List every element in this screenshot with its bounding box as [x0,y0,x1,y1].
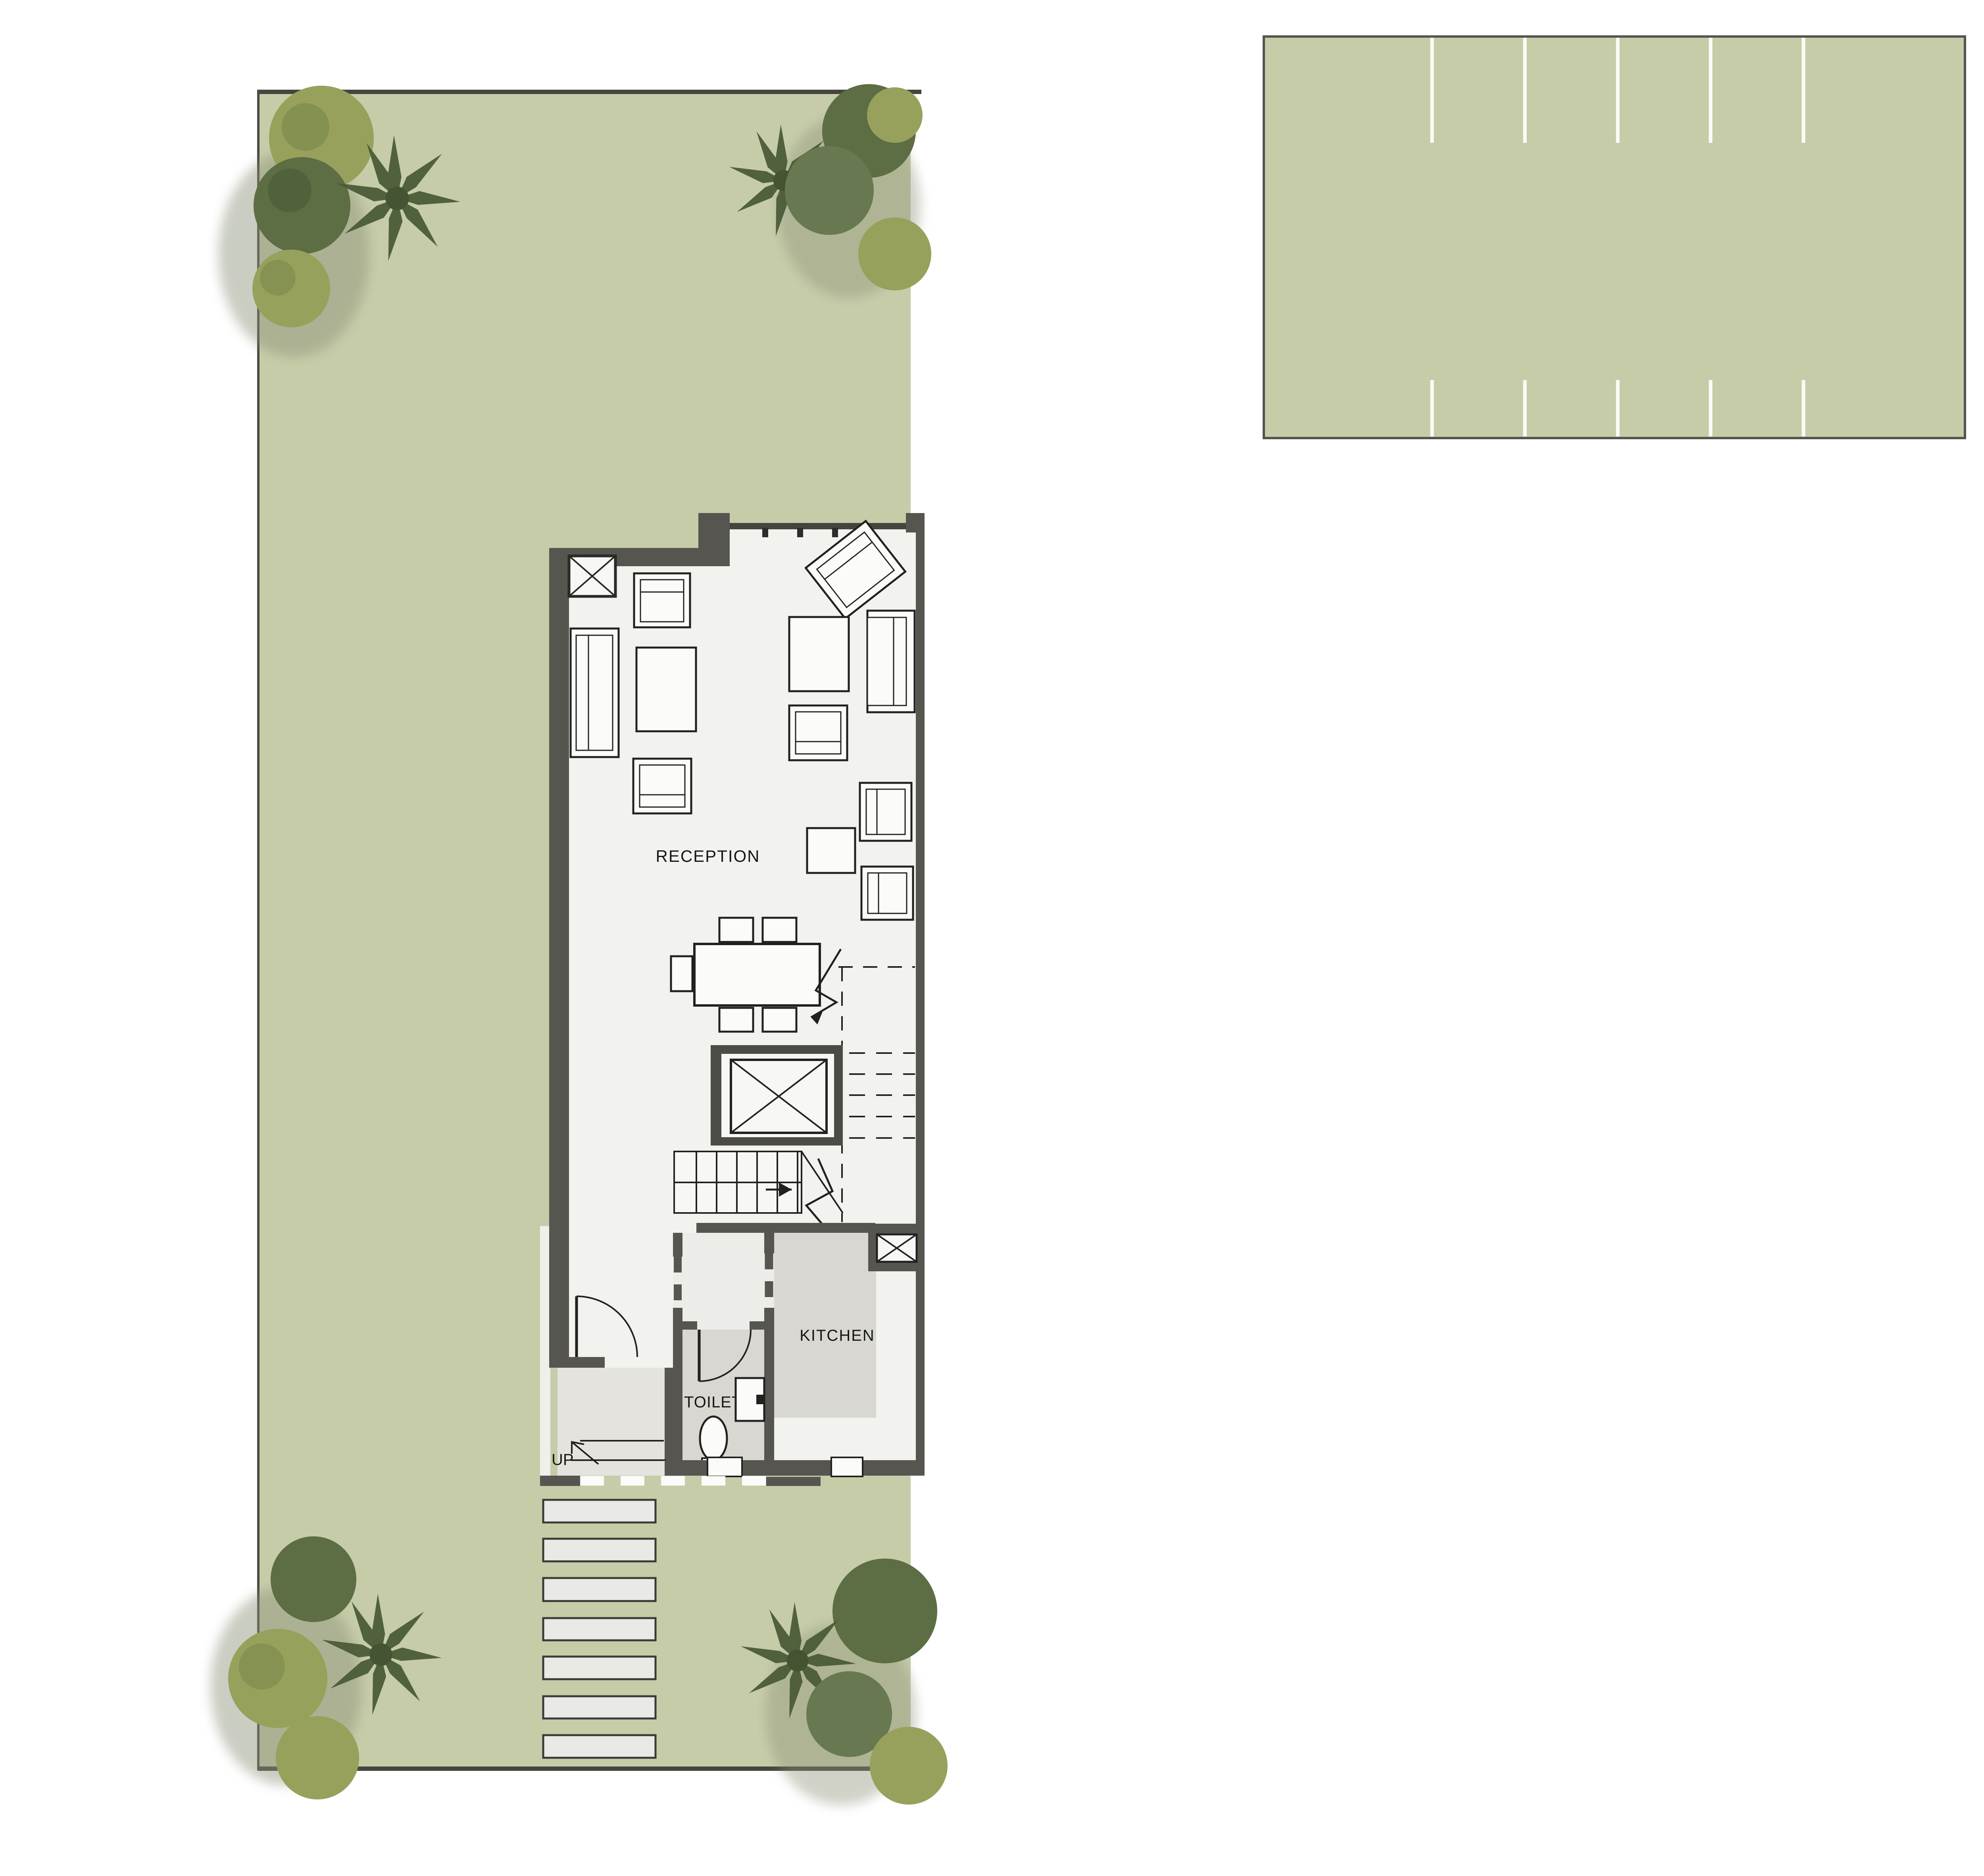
svg-text:TOILET: TOILET [684,1394,742,1411]
svg-text:RECEPTION: RECEPTION [656,847,760,865]
svg-text:UP: UP [552,1451,574,1469]
svg-text:KITCHEN: KITCHEN [800,1327,875,1344]
